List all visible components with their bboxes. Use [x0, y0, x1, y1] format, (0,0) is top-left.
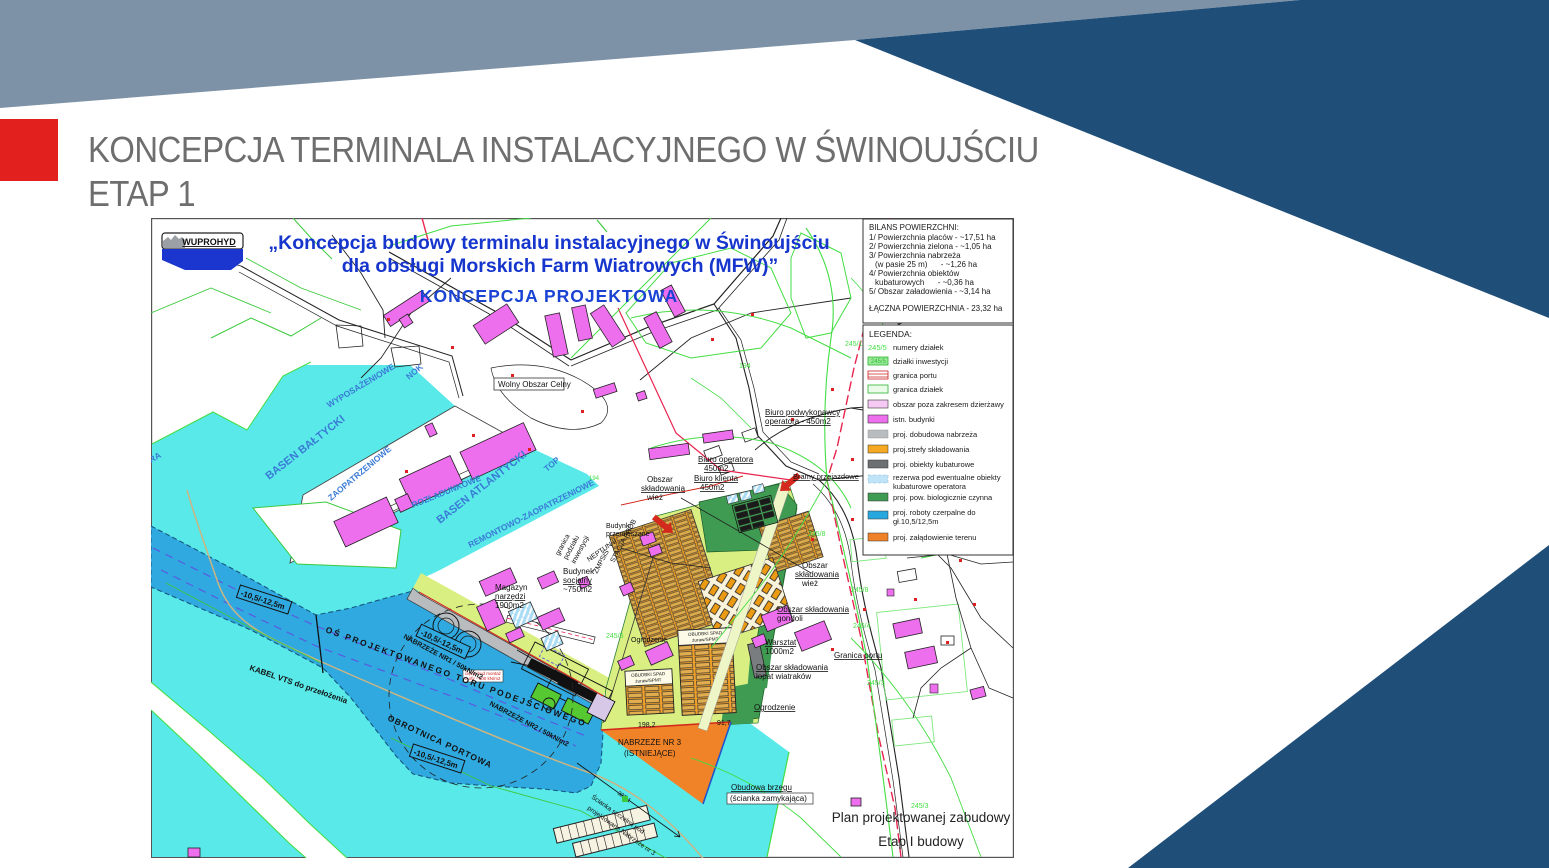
svg-text:wież: wież: [646, 493, 663, 502]
svg-text:działki inwestycji: działki inwestycji: [893, 357, 948, 366]
svg-text:numery działek: numery działek: [893, 343, 944, 352]
svg-text:proj. załądowienie terenu: proj. załądowienie terenu: [893, 533, 976, 542]
svg-text:198,2: 198,2: [638, 722, 656, 729]
svg-text:Ogrodzenie: Ogrodzenie: [631, 637, 667, 644]
svg-text:Granica portu: Granica portu: [834, 651, 882, 660]
svg-text:kubaturowe operatora: kubaturowe operatora: [893, 482, 967, 491]
svg-text:wież: wież: [801, 579, 818, 588]
svg-text:1/ Powierzchnia placów - ~17,5: 1/ Powierzchnia placów - ~17,51 ha: [869, 233, 996, 242]
svg-text:2/ Powierzchnia zielona - ~1,0: 2/ Powierzchnia zielona - ~1,05 ha: [869, 242, 992, 251]
svg-text:dla obsługi Morskich Farm Wiat: dla obsługi Morskich Farm Wiatrowych (MF…: [342, 255, 778, 277]
svg-text:obszar poza zakresem dzierżawy: obszar poza zakresem dzierżawy: [893, 400, 1004, 409]
svg-text:gł.10,5/12,5m: gł.10,5/12,5m: [893, 517, 938, 526]
svg-text:socjalny: socjalny: [563, 576, 592, 585]
svg-text:łopat wiatraków: łopat wiatraków: [756, 672, 811, 681]
svg-text:ŁĄCZNA POWIERZCHNIA - 23,32 ha: ŁĄCZNA POWIERZCHNIA - 23,32 ha: [869, 304, 1003, 313]
svg-text:450m2: 450m2: [700, 483, 725, 492]
svg-text:Obszar: Obszar: [647, 475, 673, 484]
svg-text:proj. dobudowa nabrzeża: proj. dobudowa nabrzeża: [893, 430, 978, 439]
svg-text:NABRZEŻE NR 3: NABRZEŻE NR 3: [618, 738, 682, 747]
svg-text:245/1: 245/1: [845, 341, 863, 348]
svg-text:(w pasie 25 m) - ~1,26 ha: (w pasie 25 m) - ~1,26 ha: [875, 260, 978, 269]
svg-text:Obudowa brzegu: Obudowa brzegu: [731, 783, 792, 792]
svg-text:450m2: 450m2: [704, 464, 729, 473]
svg-text:194: 194: [589, 476, 600, 482]
svg-text:Plan projektowanej zabudowy: Plan projektowanej zabudowy: [832, 810, 1011, 825]
svg-text:245/5: 245/5: [871, 359, 887, 365]
svg-text:WUPROHYD: WUPROHYD: [182, 237, 236, 247]
svg-text:1000m2: 1000m2: [765, 647, 794, 656]
svg-text:194: 194: [739, 363, 751, 370]
svg-text:245/5: 245/5: [868, 343, 887, 352]
svg-text:kubaturowych - ~0,36 ha: kubaturowych - ~0,36 ha: [875, 278, 974, 287]
svg-text:gondoli: gondoli: [777, 614, 803, 623]
svg-text:245/3: 245/3: [911, 803, 929, 810]
svg-text:Budynek: Budynek: [563, 567, 595, 576]
svg-text:Bramy przejazdowe: Bramy przejazdowe: [793, 472, 859, 481]
svg-text:Warsztat: Warsztat: [765, 638, 797, 647]
svg-text:3/ Powierzchnia nabrzeża: 3/ Powierzchnia nabrzeża: [869, 251, 961, 260]
svg-text:KONCEPCJA PROJEKTOWA: KONCEPCJA PROJEKTOWA: [420, 286, 678, 306]
svg-text:245/8: 245/8: [808, 531, 826, 538]
svg-text:~750m2: ~750m2: [563, 585, 593, 594]
svg-text:91,7: 91,7: [717, 720, 731, 727]
svg-text:245/4: 245/4: [853, 623, 871, 630]
svg-text:Obszar składowania: Obszar składowania: [777, 605, 850, 614]
svg-text:245/5: 245/5: [606, 633, 624, 640]
svg-text:245/8: 245/8: [851, 587, 869, 594]
svg-text:składowania: składowania: [795, 570, 840, 579]
svg-text:Etap I budowy: Etap I budowy: [878, 834, 964, 849]
svg-text:Obszar składowania: Obszar składowania: [756, 663, 829, 672]
svg-text:„Koncepcja budowy terminalu in: „Koncepcja budowy terminalu instalacyjne…: [268, 230, 829, 254]
svg-text:1900m2: 1900m2: [495, 601, 524, 610]
svg-text:Biuro operatora: Biuro operatora: [698, 455, 754, 464]
svg-text:operatora - 450m2: operatora - 450m2: [765, 417, 831, 426]
svg-text:składowania: składowania: [641, 484, 686, 493]
svg-text:Ogrodzenie: Ogrodzenie: [754, 703, 796, 712]
svg-text:Magazyn: Magazyn: [495, 583, 527, 592]
svg-text:(ścianka zamykająca): (ścianka zamykająca): [730, 794, 807, 803]
svg-text:(ISTNIEJĄCE): (ISTNIEJĄCE): [624, 749, 676, 758]
svg-text:granica portu: granica portu: [893, 371, 937, 380]
svg-text:Wolny Obszar Celny: Wolny Obszar Celny: [498, 380, 571, 389]
svg-text:BILANS POWIERZCHNI:: BILANS POWIERZCHNI:: [869, 223, 959, 232]
svg-text:LEGENDA:: LEGENDA:: [869, 329, 912, 339]
svg-text:4/ Powierzchnia obiektów: 4/ Powierzchnia obiektów: [869, 269, 959, 278]
svg-text:proj. roboty czerpalne do: proj. roboty czerpalne do: [893, 508, 976, 517]
svg-text:narzędzi: narzędzi: [495, 592, 525, 601]
svg-text:proj.strefy składowania: proj.strefy składowania: [893, 445, 970, 454]
svg-text:istn. budynki: istn. budynki: [893, 415, 935, 424]
svg-text:rezerwa pod ewentualne obiekty: rezerwa pod ewentualne obiekty: [893, 473, 1001, 482]
svg-text:proj. obiekty kubaturowe: proj. obiekty kubaturowe: [893, 460, 974, 469]
svg-text:Obszar: Obszar: [802, 561, 828, 570]
svg-text:5/ Obszar załadowienia - ~3,14: 5/ Obszar załadowienia - ~3,14 ha: [869, 287, 991, 296]
svg-text:proj. pow. biologicznie czynna: proj. pow. biologicznie czynna: [893, 493, 993, 502]
svg-text:granica działek: granica działek: [893, 385, 943, 394]
svg-text:Biuro klienta: Biuro klienta: [694, 474, 739, 483]
svg-text:245/3: 245/3: [867, 680, 885, 687]
svg-text:Biuro podwykonawcy: Biuro podwykonawcy: [765, 408, 840, 417]
